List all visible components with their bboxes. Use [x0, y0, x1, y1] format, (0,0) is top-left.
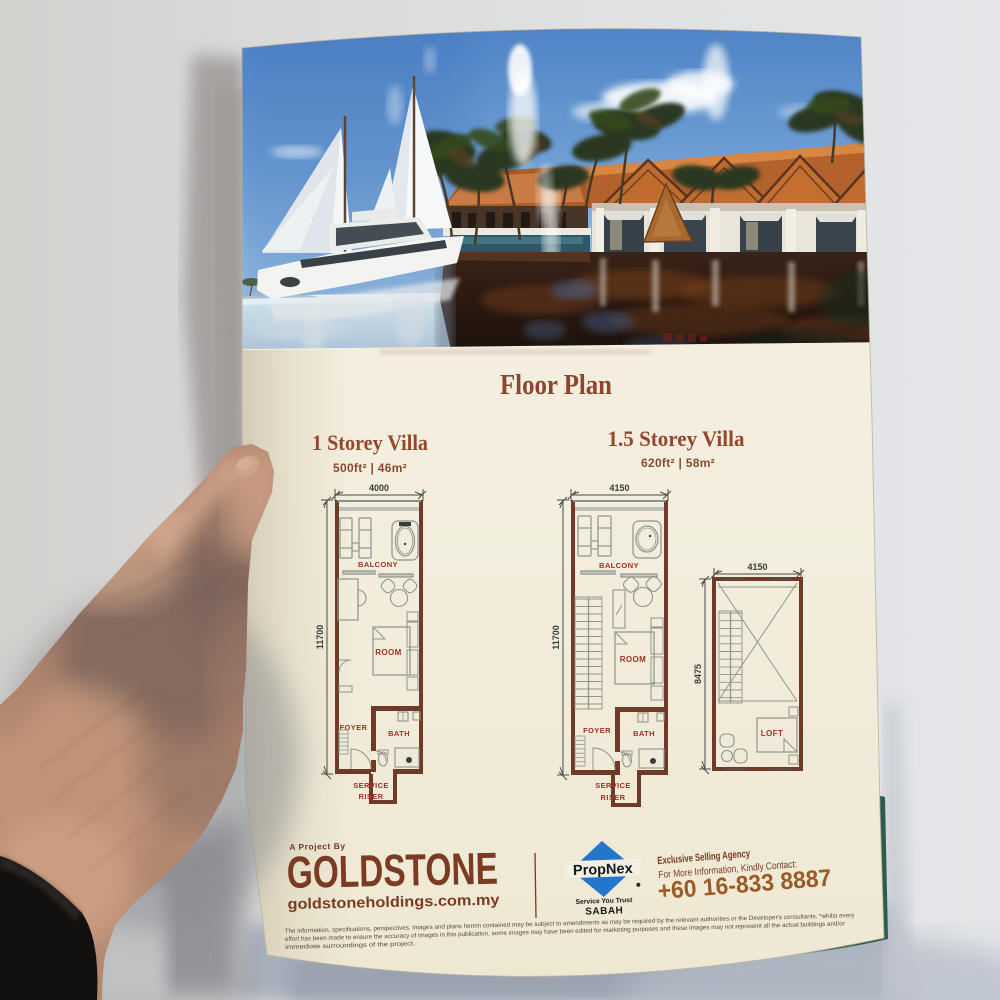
- svg-text:620ft² | 58m²: 620ft² | 58m²: [641, 456, 715, 470]
- svg-text:SERVICE: SERVICE: [353, 781, 389, 790]
- svg-text:ROOM: ROOM: [375, 648, 402, 657]
- svg-text:Floor Plan: Floor Plan: [500, 369, 612, 401]
- svg-text:11700: 11700: [315, 625, 325, 650]
- svg-text:PropNex: PropNex: [573, 861, 633, 879]
- svg-text:SERVICE: SERVICE: [595, 781, 631, 790]
- svg-text:RISER: RISER: [359, 792, 384, 801]
- svg-text:500ft² | 46m²: 500ft² | 46m²: [333, 461, 407, 475]
- svg-text:8475: 8475: [693, 664, 703, 684]
- svg-text:1 Storey Villa: 1 Storey Villa: [312, 430, 428, 455]
- svg-text:4150: 4150: [609, 483, 629, 493]
- svg-text:11700: 11700: [551, 625, 561, 650]
- svg-text:RISER: RISER: [601, 793, 626, 802]
- svg-text:1.5 Storey Villa: 1.5 Storey Villa: [608, 426, 745, 451]
- svg-text:ROOM: ROOM: [620, 655, 647, 664]
- svg-text:BALCONY: BALCONY: [599, 561, 639, 570]
- svg-text:LOFT: LOFT: [761, 729, 783, 738]
- svg-text:FOYER: FOYER: [340, 723, 368, 732]
- svg-text:4000: 4000: [369, 483, 389, 493]
- svg-text:BATH: BATH: [388, 729, 410, 738]
- svg-text:SABAH: SABAH: [585, 905, 623, 917]
- svg-text:4150: 4150: [747, 562, 767, 572]
- svg-text:BALCONY: BALCONY: [358, 560, 398, 569]
- svg-text:FOYER: FOYER: [583, 726, 611, 735]
- svg-text:BATH: BATH: [633, 729, 655, 738]
- svg-text:GOLDSTONE: GOLDSTONE: [286, 843, 498, 898]
